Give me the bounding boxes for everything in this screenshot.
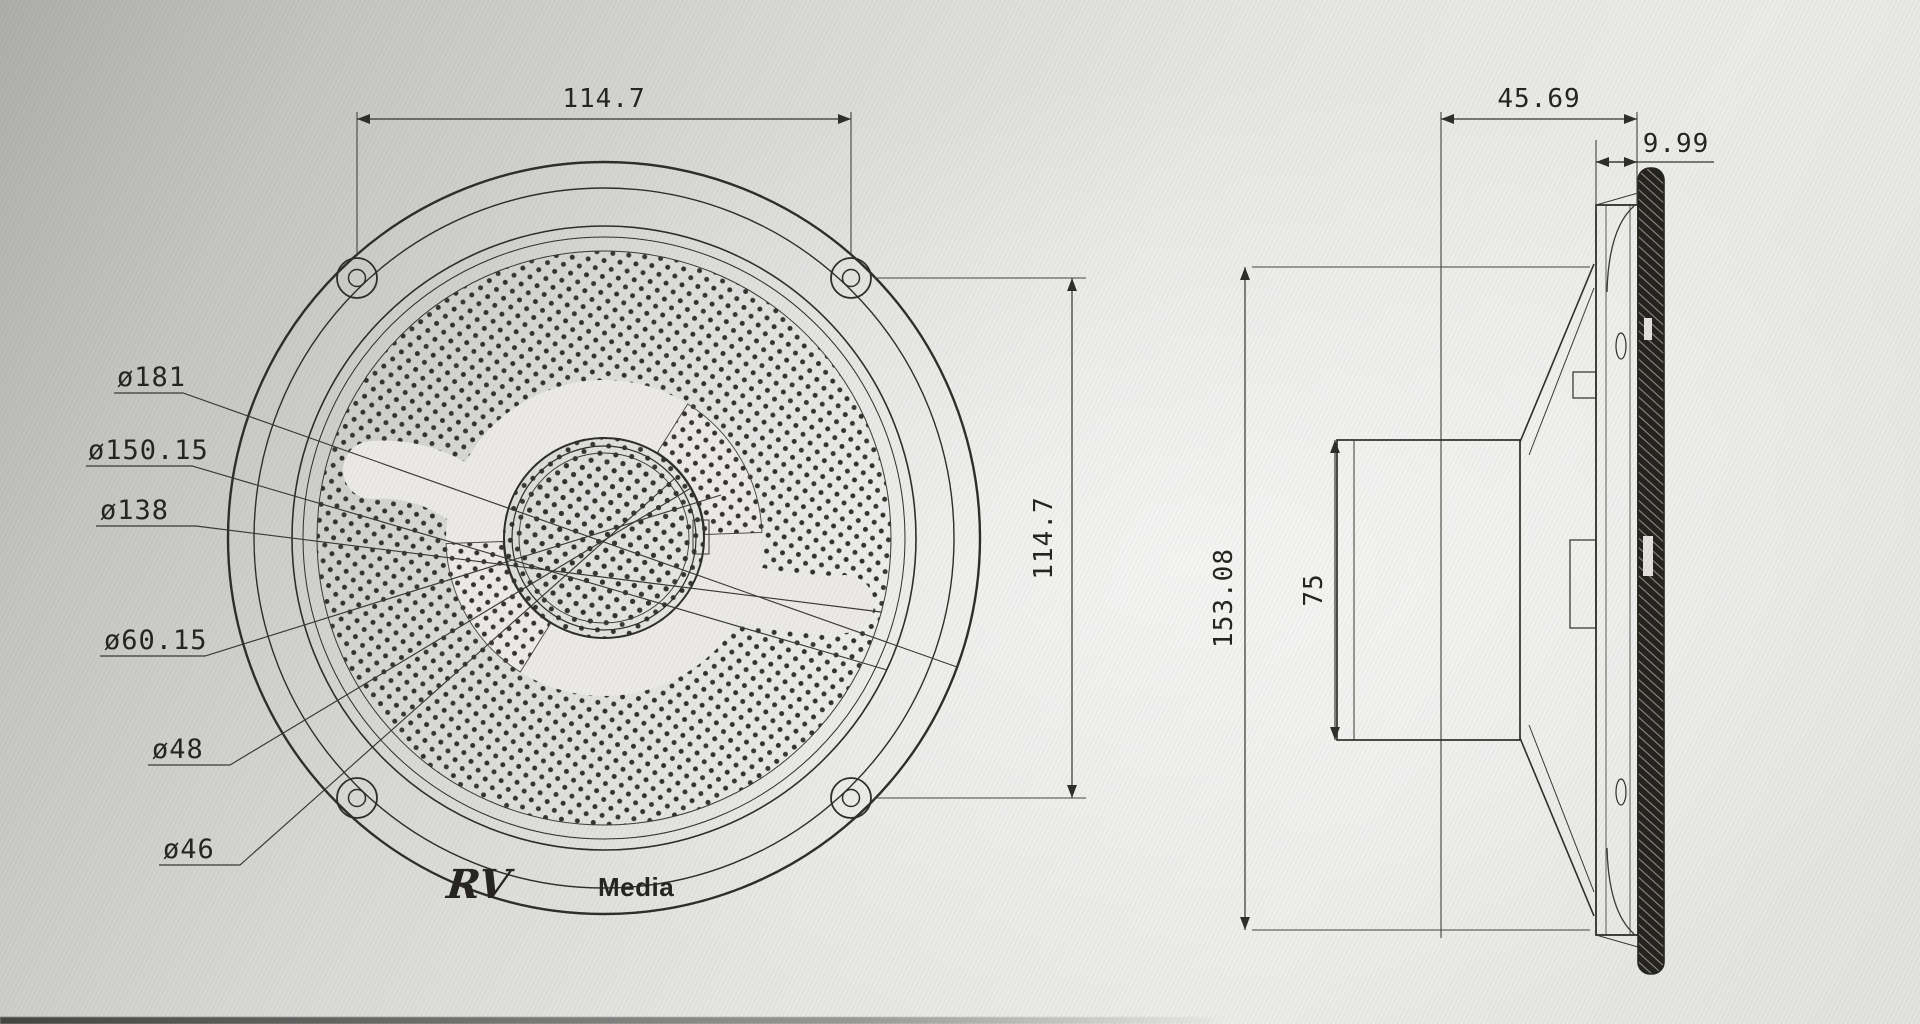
screw-hole-bottom-left: [337, 778, 377, 818]
label-diameter-ring-inner: ø46: [163, 834, 215, 865]
flange-hole-bottom: [1616, 779, 1626, 805]
screw-hole-top-left: [337, 258, 377, 298]
dim-text-flange: 9.99: [1643, 129, 1710, 159]
dim-text-right: 114.7: [1029, 496, 1059, 579]
dimension-overall-height: 153.08: [1209, 267, 1590, 930]
scanned-paper-background: ø181 ø150.15 ø138 ø60.15 ø48 ø46: [0, 0, 1920, 1024]
label-diameter-outer: ø181: [117, 362, 186, 393]
dimension-magnet-height: 75: [1299, 440, 1335, 740]
side-view: 45.69 9.99 153.08 75: [1209, 84, 1714, 974]
front-view: ø181 ø150.15 ø138 ø60.15 ø48 ø46: [86, 84, 1086, 914]
dimension-depth: 45.69: [1441, 84, 1637, 205]
label-diameter-perforation: ø138: [100, 495, 169, 526]
logo-rv: RV: [444, 861, 517, 908]
screw-hole-top-right: [831, 258, 871, 298]
scan-edge-artifact: [0, 1017, 1229, 1024]
label-diameter-swirl: ø60.15: [104, 625, 208, 656]
mounting-flange: [1596, 193, 1638, 947]
magnet-profile: [1337, 440, 1520, 740]
speaker-technical-drawing: ø181 ø150.15 ø138 ø60.15 ø48 ø46: [0, 0, 1920, 1024]
center-perforated-disc: [519, 453, 689, 623]
basket-cone: [1520, 264, 1594, 916]
label-diameter-ring-outer: ø48: [152, 734, 204, 765]
dim-text-top: 114.7: [562, 84, 645, 114]
basket-step: [1573, 372, 1596, 398]
terminal-block: [1570, 540, 1596, 628]
label-diameter-grille: ø150.15: [88, 435, 209, 466]
dimension-bolt-spacing-horizontal: 114.7: [357, 84, 851, 254]
dim-text-magnet: 75: [1299, 573, 1329, 606]
dim-text-overall-height: 153.08: [1209, 548, 1239, 648]
grille-edge-strip: [1638, 168, 1664, 974]
logo-media: Media: [598, 872, 674, 902]
dim-text-depth: 45.69: [1497, 84, 1580, 114]
screw-hole-bottom-right: [831, 778, 871, 818]
flange-hole-top: [1616, 333, 1626, 359]
